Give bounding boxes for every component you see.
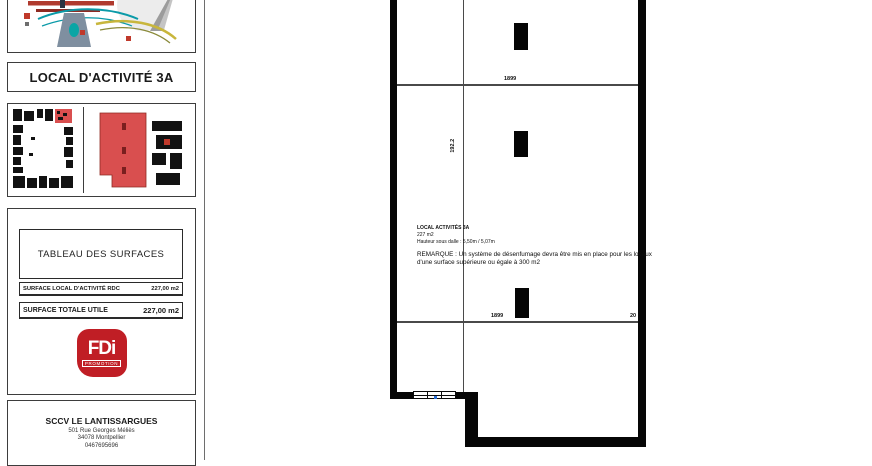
page-title: LOCAL D'ACTIVITÉ 3A (30, 70, 174, 85)
company-address-line2: 34078 Montpellier (8, 435, 195, 441)
architect-logo-panel: Modernes (7, 0, 196, 53)
gridline-vertical (463, 0, 464, 392)
wall-bottom (465, 437, 646, 447)
table-row-total: SURFACE TOTALE UTILE 227,00 m2 (19, 302, 183, 319)
structural-column (514, 23, 528, 50)
company-info-panel: SCCV LE LANTISSARGUES 501 Rue Georges Mé… (7, 400, 196, 466)
architect-logo-icon (8, 0, 194, 51)
structural-column (515, 288, 529, 318)
wall-left (390, 0, 397, 399)
surface-row-value: 227,00 m2 (151, 286, 179, 292)
fdi-logo-text: FDi (88, 339, 116, 358)
remark-line1: REMARQUE : Un système de désenfumage dev… (417, 251, 652, 258)
company-phone: 0467695696 (8, 443, 195, 449)
room-area: 227 m2 (417, 232, 667, 239)
surface-table-title: TABLEAU DES SURFACES (19, 229, 183, 279)
architect-logo-text: Modernes (121, 0, 181, 2)
gridline-horizontal-top (397, 84, 638, 86)
key-plan-icon (11, 107, 77, 191)
structural-column (514, 131, 528, 157)
location-plans-panel (7, 103, 196, 197)
room-annotation: LOCAL ACTIVITÉS 3A 227 m2 Hauteur sous d… (417, 225, 667, 268)
wall-entry-left (390, 392, 415, 399)
key-plan-thumbnail (11, 107, 84, 193)
surface-total-value: 227,00 m2 (143, 306, 179, 315)
dimension-left-vertical: 192.2 (451, 138, 457, 154)
window-marker (434, 396, 437, 399)
unit-plan-icon (86, 109, 190, 191)
gridline-horizontal-bottom (397, 321, 638, 323)
window-frame (413, 391, 456, 399)
unit-plan-thumbnail (84, 107, 192, 193)
company-address-line1: 501 Rue Georges Méliès (8, 428, 195, 434)
wall-step-vertical (465, 392, 478, 442)
dimension-bottom-bay: 1899 (490, 314, 504, 320)
window-mullion (427, 392, 428, 398)
dimension-top-bay: 1899 (503, 77, 517, 83)
surface-table-panel: TABLEAU DES SURFACES SURFACE LOCAL D'ACT… (7, 208, 196, 395)
fdi-logo-subtitle: PROMOTION (82, 360, 121, 367)
surface-total-label: SURFACE TOTALE UTILE (23, 307, 108, 314)
remark-line2: d'une surface supérieure ou égale à 300 … (417, 259, 540, 266)
fdi-promotion-logo: FDi PROMOTION (77, 329, 127, 377)
surface-row-label: SURFACE LOCAL D'ACTIVITÉ RDC (23, 286, 120, 292)
surface-table: TABLEAU DES SURFACES SURFACE LOCAL D'ACT… (19, 229, 183, 319)
room-height-note: Hauteur sous dalle : 5,50m / 5,07m (417, 239, 667, 246)
wall-right (638, 0, 646, 447)
table-row: SURFACE LOCAL D'ACTIVITÉ RDC 227,00 m2 (19, 282, 183, 296)
smoke-extraction-remark: REMARQUE : Un système de désenfumage dev… (417, 251, 667, 269)
project-title-panel: LOCAL D'ACTIVITÉ 3A (7, 62, 196, 92)
window-mullion (441, 392, 442, 398)
titleblock-divider (204, 0, 205, 460)
wall-entry-right (453, 392, 478, 399)
dimension-bottom-right: 20 (629, 314, 637, 320)
company-name: SCCV LE LANTISSARGUES (8, 416, 195, 426)
